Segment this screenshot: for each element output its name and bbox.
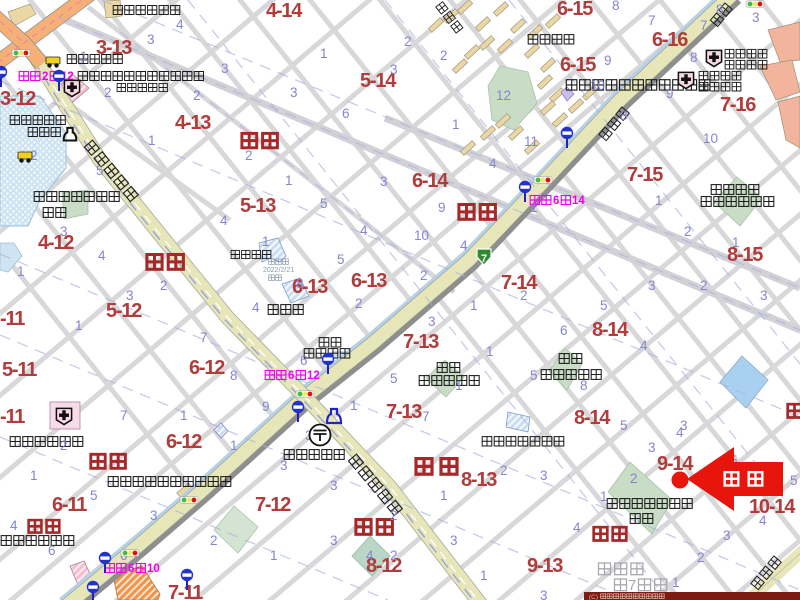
svg-text:3: 3	[330, 478, 338, 493]
svg-text:6-14: 6-14	[412, 170, 449, 192]
svg-text:6-12: 6-12	[166, 431, 202, 453]
svg-text:2: 2	[193, 88, 201, 103]
svg-text:7: 7	[700, 18, 708, 33]
svg-text:9-13: 9-13	[527, 555, 563, 577]
svg-text:1: 1	[530, 200, 538, 215]
svg-text:1: 1	[672, 575, 680, 590]
svg-text:1: 1	[148, 133, 156, 148]
svg-text:3: 3	[450, 533, 458, 548]
svg-text:1: 1	[470, 298, 478, 313]
svg-text:12: 12	[307, 370, 320, 382]
svg-text:8-13: 8-13	[461, 469, 497, 491]
svg-text:7: 7	[628, 577, 636, 594]
svg-text:4: 4	[489, 156, 497, 171]
svg-text:3: 3	[648, 278, 656, 293]
svg-text:9: 9	[262, 399, 270, 414]
svg-text:6-15: 6-15	[557, 0, 593, 20]
svg-text:5: 5	[337, 252, 345, 267]
svg-text:6: 6	[300, 353, 308, 368]
svg-text:(C): (C)	[589, 594, 598, 600]
svg-text:3: 3	[723, 528, 731, 543]
svg-text:12: 12	[496, 88, 511, 103]
svg-text:6: 6	[342, 106, 350, 121]
svg-text:7-16: 7-16	[720, 94, 756, 116]
svg-text:4-14: 4-14	[266, 0, 303, 22]
svg-text:7-11: 7-11	[168, 582, 203, 600]
svg-text:3: 3	[380, 174, 388, 189]
svg-text:5: 5	[530, 368, 538, 383]
svg-text:1: 1	[480, 568, 488, 583]
svg-text:6: 6	[288, 370, 294, 382]
svg-text:1: 1	[486, 344, 494, 359]
svg-text:5: 5	[390, 371, 398, 386]
svg-text:2: 2	[700, 278, 708, 293]
svg-text:4: 4	[176, 17, 184, 32]
svg-text:1: 1	[262, 234, 270, 249]
svg-text:1: 1	[320, 46, 328, 61]
svg-text:10: 10	[590, 78, 605, 93]
svg-text:8: 8	[612, 0, 620, 13]
svg-text:3: 3	[540, 588, 548, 600]
svg-text:2: 2	[697, 550, 705, 565]
svg-text:1: 1	[600, 489, 608, 504]
svg-text:1: 1	[180, 408, 188, 423]
svg-text:-11: -11	[0, 308, 25, 330]
svg-text:6-13: 6-13	[351, 270, 387, 292]
svg-text:1: 1	[655, 193, 663, 208]
svg-text:5-12: 5-12	[106, 300, 142, 322]
svg-text:6-12: 6-12	[189, 357, 225, 379]
svg-text:3: 3	[540, 468, 548, 483]
svg-text:9: 9	[666, 86, 674, 101]
svg-text:3: 3	[126, 288, 134, 303]
svg-text:10: 10	[147, 563, 160, 575]
svg-text:4: 4	[759, 513, 767, 528]
svg-text:1: 1	[452, 117, 460, 132]
svg-text:3: 3	[648, 440, 656, 455]
svg-text:5: 5	[320, 196, 328, 211]
svg-text:4: 4	[360, 223, 368, 238]
svg-text:7: 7	[422, 409, 430, 424]
svg-text:4-13: 4-13	[175, 112, 211, 134]
svg-text:7: 7	[200, 330, 208, 345]
svg-text:1: 1	[17, 264, 25, 279]
svg-text:3: 3	[221, 61, 229, 76]
svg-text:2: 2	[210, 533, 218, 548]
svg-text:2: 2	[390, 548, 398, 563]
svg-text:8: 8	[580, 378, 588, 393]
svg-text:3: 3	[280, 458, 288, 473]
svg-text:4: 4	[10, 518, 18, 533]
svg-text:4: 4	[640, 338, 648, 353]
svg-text:4: 4	[676, 425, 684, 440]
svg-text:7: 7	[120, 408, 128, 423]
svg-text:5-13: 5-13	[240, 195, 276, 217]
svg-text:5: 5	[620, 418, 628, 433]
svg-text:3: 3	[147, 32, 155, 47]
svg-text:2: 2	[42, 71, 48, 83]
svg-text:3: 3	[390, 62, 398, 77]
svg-text:4: 4	[98, 248, 106, 263]
svg-text:9: 9	[604, 53, 612, 68]
svg-text:2: 2	[245, 148, 253, 163]
svg-text:14: 14	[572, 195, 585, 207]
svg-text:1: 1	[270, 548, 278, 563]
svg-text:4-12: 4-12	[38, 232, 74, 254]
svg-text:11: 11	[524, 134, 538, 149]
svg-text:3: 3	[428, 314, 436, 329]
svg-text:7-13: 7-13	[403, 331, 439, 353]
svg-text:3: 3	[752, 10, 760, 25]
svg-text:1: 1	[732, 235, 740, 250]
svg-text:8: 8	[620, 108, 628, 123]
svg-text:1: 1	[455, 378, 463, 393]
svg-text:5: 5	[90, 488, 98, 503]
svg-text:7-12: 7-12	[255, 494, 291, 516]
svg-text:2: 2	[404, 34, 412, 49]
svg-text:7: 7	[648, 13, 656, 28]
svg-text:3: 3	[760, 288, 768, 303]
svg-text:4: 4	[573, 520, 581, 535]
svg-text:2: 2	[355, 296, 363, 311]
svg-text:9-14: 9-14	[657, 453, 694, 475]
svg-text:8: 8	[230, 368, 238, 383]
svg-text:2: 2	[440, 48, 448, 63]
svg-text:3-12: 3-12	[0, 88, 36, 110]
svg-text:3: 3	[330, 533, 338, 548]
svg-text:6-15: 6-15	[560, 54, 596, 76]
svg-text:4: 4	[252, 300, 260, 315]
svg-text:8-14: 8-14	[574, 407, 611, 429]
svg-text:1: 1	[230, 438, 238, 453]
svg-text:2022/2/21: 2022/2/21	[263, 267, 294, 274]
svg-text:3: 3	[290, 85, 298, 100]
svg-text:2: 2	[160, 278, 168, 293]
svg-text:10: 10	[703, 131, 718, 146]
svg-text:2: 2	[390, 508, 398, 523]
svg-text:6: 6	[553, 195, 559, 207]
svg-text:5: 5	[96, 163, 104, 178]
svg-text:2: 2	[500, 463, 508, 478]
svg-text:5: 5	[790, 473, 798, 488]
svg-text:3: 3	[150, 508, 158, 523]
svg-text:6-16: 6-16	[652, 29, 688, 51]
svg-text:8-14: 8-14	[592, 319, 629, 341]
svg-text:7-13: 7-13	[386, 401, 422, 423]
svg-text:6: 6	[560, 323, 568, 338]
svg-text:2: 2	[420, 268, 428, 283]
svg-text:2: 2	[60, 438, 68, 453]
svg-text:1: 1	[75, 318, 83, 333]
svg-text:3: 3	[60, 224, 68, 239]
svg-text:9: 9	[438, 200, 446, 215]
svg-text:2: 2	[630, 471, 638, 486]
svg-text:10-14: 10-14	[749, 496, 796, 518]
svg-text:8: 8	[716, 2, 724, 17]
svg-text:1: 1	[80, 49, 88, 64]
svg-text:4: 4	[366, 548, 374, 563]
svg-text:6-11: 6-11	[52, 494, 87, 516]
svg-text:7-15: 7-15	[627, 164, 663, 186]
svg-text:4: 4	[220, 213, 228, 228]
svg-text:8: 8	[296, 276, 304, 291]
svg-text:6: 6	[48, 543, 56, 558]
svg-text:2: 2	[104, 85, 112, 100]
svg-text:1: 1	[350, 398, 358, 413]
svg-text:5-11: 5-11	[2, 359, 37, 381]
svg-text:-11: -11	[0, 406, 25, 428]
svg-text:10: 10	[414, 228, 429, 243]
svg-text:1: 1	[285, 173, 293, 188]
svg-text:6: 6	[128, 563, 134, 575]
svg-text:1: 1	[30, 468, 38, 483]
svg-text:2: 2	[520, 288, 528, 303]
svg-text:2: 2	[684, 224, 692, 239]
svg-text:5: 5	[600, 298, 608, 313]
svg-text:8: 8	[690, 50, 698, 65]
svg-text:1: 1	[440, 488, 448, 503]
svg-text:4: 4	[460, 238, 468, 253]
svg-text:7: 7	[481, 253, 487, 265]
